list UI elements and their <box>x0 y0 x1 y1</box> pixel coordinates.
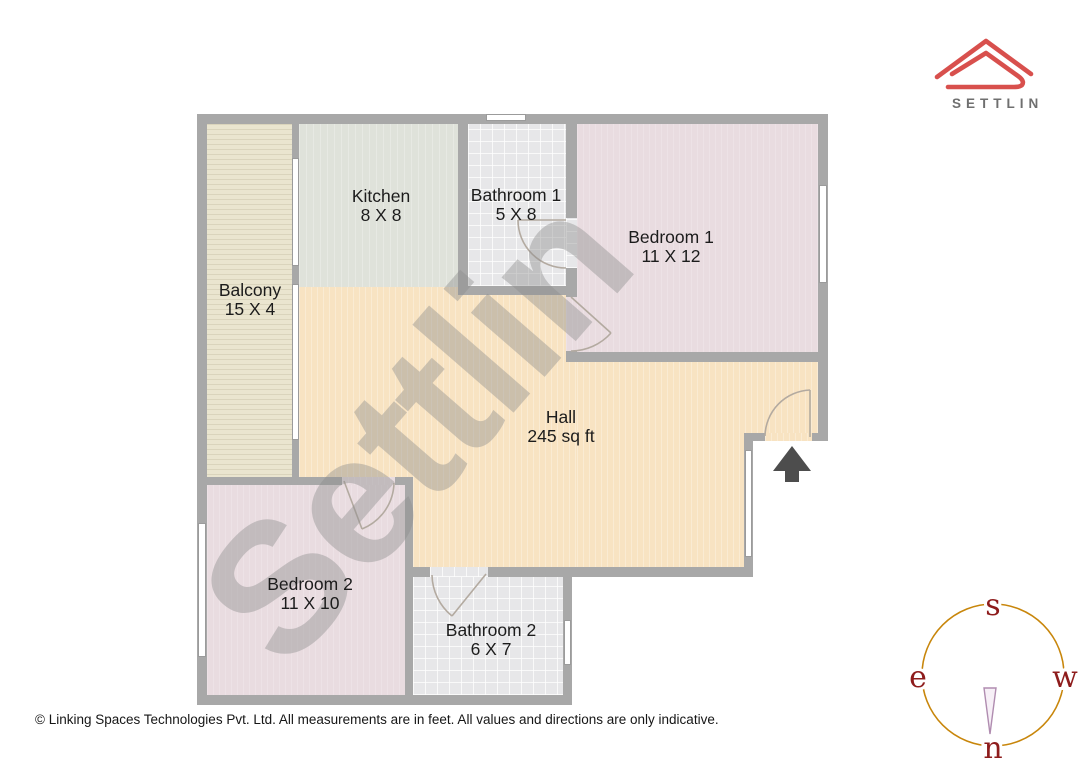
room-dims: 11 X 12 <box>628 247 714 266</box>
room-dims: 6 X 7 <box>446 640 536 659</box>
compass-north: n <box>983 731 1002 764</box>
compass-south: s <box>985 588 1000 623</box>
room-dims: 15 X 4 <box>219 300 281 319</box>
room-name: Bedroom 1 <box>628 228 714 247</box>
compass-needle <box>984 688 996 734</box>
room-label-kitchen: Kitchen 8 X 8 <box>352 187 410 225</box>
brand-wordmark: SETTLIN <box>952 96 1043 111</box>
room-name: Bathroom 1 <box>471 186 561 205</box>
room-label-bedroom2: Bedroom 2 11 X 10 <box>267 575 353 613</box>
room-name: Bedroom 2 <box>267 575 353 594</box>
room-name: Balcony <box>219 281 281 300</box>
room-label-bathroom1: Bathroom 1 5 X 8 <box>471 186 561 224</box>
compass: s e w n <box>900 570 1080 764</box>
room-dims: 8 X 8 <box>352 206 410 225</box>
room-dims: 245 sq ft <box>527 427 594 446</box>
room-name: Bathroom 2 <box>446 621 536 640</box>
room-label-bathroom2: Bathroom 2 6 X 7 <box>446 621 536 659</box>
compass-west: w <box>1052 660 1078 695</box>
room-label-bedroom1: Bedroom 1 11 X 12 <box>628 228 714 266</box>
compass-circle <box>922 604 1064 746</box>
floorplan-page: Settlin Kitchen 8 X 8 Bathroom 1 5 X 8 B… <box>0 0 1080 764</box>
room-label-balcony: Balcony 15 X 4 <box>219 281 281 319</box>
settlin-logo-icon <box>920 30 1050 92</box>
roof-glyph <box>937 41 1031 87</box>
room-name: Kitchen <box>352 187 410 206</box>
room-label-hall: Hall 245 sq ft <box>527 408 594 446</box>
compass-letters: s e w n <box>909 588 1078 764</box>
compass-east: e <box>909 660 927 695</box>
copyright-text: © Linking Spaces Technologies Pvt. Ltd. … <box>35 712 719 727</box>
entrance-arrow-icon <box>773 446 811 482</box>
room-dims: 11 X 10 <box>267 594 353 613</box>
room-dims: 5 X 8 <box>471 205 561 224</box>
room-name: Hall <box>527 408 594 427</box>
